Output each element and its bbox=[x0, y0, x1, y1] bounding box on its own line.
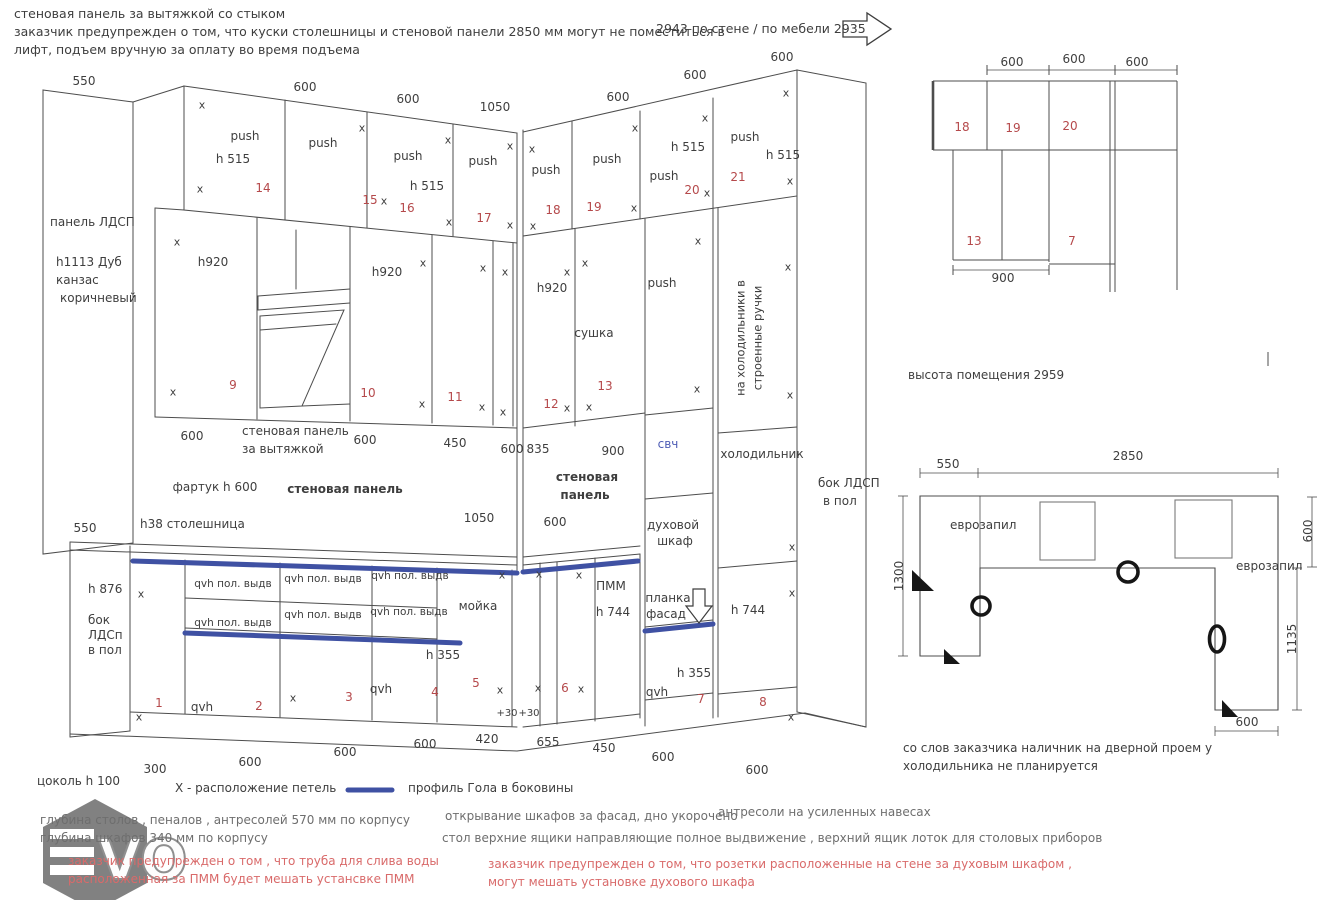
hinge-mark: x bbox=[419, 399, 426, 410]
drawing-label: бок bbox=[88, 614, 110, 626]
hinge-mark: x bbox=[564, 403, 571, 414]
drawing-label: ЛДСп bbox=[88, 629, 123, 641]
drawing-label: в пол bbox=[88, 644, 122, 656]
drawing-label: qvh bbox=[646, 686, 668, 698]
hinge-mark: x bbox=[787, 176, 794, 187]
drawing-label: h920 bbox=[372, 266, 403, 278]
cabinet-number: 13 bbox=[966, 235, 981, 247]
drawing-label: планка bbox=[645, 592, 690, 604]
hinge-mark: x bbox=[197, 184, 204, 195]
drawing-label: заказчик предупрежден о том , что труба … bbox=[68, 855, 439, 867]
gola-legend: профиль Гола в боковины bbox=[408, 782, 573, 794]
drawing-label: h 744 bbox=[596, 606, 630, 618]
drawing-label: 550 bbox=[73, 75, 96, 87]
door-trim-note: холодильника не планируется bbox=[903, 760, 1098, 772]
drawing-label: 450 bbox=[593, 742, 616, 754]
cabinet-number: 18 bbox=[545, 204, 560, 216]
hinge-mark: x bbox=[359, 123, 366, 134]
drawing-label: qvh bbox=[191, 701, 213, 713]
drawing-label: канзас bbox=[56, 274, 99, 286]
cabinet-number: 7 bbox=[697, 693, 705, 705]
hinge-mark: x bbox=[564, 267, 571, 278]
drawing-label: 600 bbox=[354, 434, 377, 446]
hinge-mark: x bbox=[582, 258, 589, 269]
hinge-mark: x bbox=[480, 263, 487, 274]
hinge-mark: x bbox=[631, 203, 638, 214]
drawing-label: 655 bbox=[537, 736, 560, 748]
cabinet-number: 2 bbox=[255, 700, 263, 712]
drawing-label: могут мешать установке духового шкафа bbox=[488, 876, 755, 888]
drawing-label: сушка bbox=[574, 327, 613, 339]
cabinet-number: 19 bbox=[586, 201, 601, 213]
fridge-handles-note: строенные ручки bbox=[752, 286, 764, 391]
drawing-label: qvh пол. выдв bbox=[284, 610, 361, 621]
room-height-note: высота помещения 2959 bbox=[908, 369, 1064, 381]
drawing-label: h920 bbox=[537, 282, 568, 294]
hinge-mark: x bbox=[704, 188, 711, 199]
drawing-label: 600 bbox=[181, 430, 204, 442]
hinge-mark: x bbox=[789, 588, 796, 599]
drawing-label: qvh bbox=[370, 683, 392, 695]
hinge-mark: x bbox=[785, 262, 792, 273]
cabinet-number: 15 bbox=[362, 194, 377, 206]
drawing-label: push bbox=[468, 155, 497, 167]
drawing-label: h 515 bbox=[410, 180, 444, 192]
drawing-label: 550 bbox=[74, 522, 97, 534]
note-lift-1: заказчик предупрежден о том, что куски с… bbox=[14, 26, 725, 39]
drawing-label: h 876 bbox=[88, 583, 122, 595]
hinge-mark: x bbox=[500, 407, 507, 418]
hinge-mark: x bbox=[632, 123, 639, 134]
drawing-label: 600 bbox=[652, 751, 675, 763]
door-trim-note: со слов заказчика наличник на дверной пр… bbox=[903, 742, 1212, 754]
drawing-label: антресоли на усиленных навесах bbox=[718, 806, 931, 818]
hinge-mark: x bbox=[420, 258, 427, 269]
drawing-label: push bbox=[531, 164, 560, 176]
drawing-label: 600 bbox=[1302, 520, 1314, 543]
hinge-mark: x bbox=[783, 88, 790, 99]
drawing-label: +30 bbox=[496, 709, 517, 719]
drawing-label: 1300 bbox=[893, 561, 905, 592]
drawing-label: панель ЛДСП bbox=[50, 216, 135, 228]
hinge-mark: x bbox=[290, 693, 297, 704]
drawing-label: глубина столов , пеналов , антресолей 57… bbox=[40, 814, 410, 826]
drawing-label: 600 bbox=[1063, 53, 1086, 65]
cabinet-number: 9 bbox=[229, 379, 237, 391]
hinge-mark: x bbox=[138, 589, 145, 600]
drawing-label: qvh пол. выдв bbox=[194, 618, 271, 629]
drawing-label: 835 bbox=[527, 443, 550, 455]
hinge-mark: x bbox=[446, 217, 453, 228]
hinge-mark: x bbox=[199, 100, 206, 111]
drawing-label: h 515 bbox=[671, 141, 705, 153]
drawing-label: шкаф bbox=[657, 535, 693, 547]
cabinet-number: 3 bbox=[345, 691, 353, 703]
hinge-mark: x bbox=[787, 390, 794, 401]
drawing-label: 2850 bbox=[1113, 450, 1144, 462]
hinge-mark: x bbox=[586, 402, 593, 413]
drawing-label: еврозапил bbox=[950, 519, 1016, 531]
cabinet-number: 8 bbox=[759, 696, 767, 708]
fridge-handles-note: на холодильники в bbox=[735, 280, 747, 396]
drawing-label: коричневый bbox=[60, 292, 137, 304]
drawing-label: push bbox=[308, 137, 337, 149]
drawing-label: заказчик предупрежден о том, что розетки… bbox=[488, 858, 1072, 870]
drawing-label: еврозапил bbox=[1236, 560, 1302, 572]
drawing-label: push bbox=[647, 277, 676, 289]
cabinet-number: 6 bbox=[561, 682, 569, 694]
drawing-label: стеновая bbox=[556, 471, 618, 483]
drawing-label: 600 bbox=[1126, 56, 1149, 68]
drawing-label: стол верхние ящики направляющие полное в… bbox=[442, 832, 1102, 844]
hinge-mark: x bbox=[578, 684, 585, 695]
cabinet-number: 18 bbox=[954, 121, 969, 133]
drawing-label: qvh пол. выдв bbox=[370, 607, 447, 618]
hinge-legend: X - расположение петель bbox=[175, 782, 336, 794]
cabinet-number: 12 bbox=[543, 398, 558, 410]
drawing-label: 900 bbox=[602, 445, 625, 457]
drawing-label: 600 bbox=[684, 69, 707, 81]
drawing-label: панель bbox=[560, 489, 609, 501]
hinge-mark: x bbox=[170, 387, 177, 398]
cabinet-number: 11 bbox=[447, 391, 462, 403]
wall-length-note: 2943 по стене / по мебели 2935 bbox=[656, 23, 866, 36]
drawing-label: h1113 Дуб bbox=[56, 256, 122, 268]
note-wall-panel: стеновая панель за вытяжкой со стыком bbox=[14, 8, 285, 21]
drawing-label: фасад bbox=[646, 608, 686, 620]
drawing-label: духовой bbox=[647, 519, 699, 531]
drawing-label: +30 bbox=[518, 709, 539, 719]
drawing-label: глубина шкафов 340 мм по корпусу bbox=[40, 832, 268, 844]
hinge-mark: x bbox=[497, 685, 504, 696]
drawing-label: qvh пол. выдв bbox=[284, 574, 361, 585]
drawing-label: стеновая панель bbox=[242, 425, 349, 437]
drawing-label: h920 bbox=[198, 256, 229, 268]
hinge-mark: x bbox=[530, 221, 537, 232]
hinge-mark: x bbox=[535, 683, 542, 694]
drawing-label: 600 bbox=[771, 51, 794, 63]
drawing-label: qvh пол. выдв bbox=[194, 579, 271, 590]
drawing-label: цоколь h 100 bbox=[37, 775, 120, 787]
hinge-mark: x bbox=[479, 402, 486, 413]
drawing-label: 450 bbox=[444, 437, 467, 449]
drawing-label: ПММ bbox=[596, 580, 626, 592]
drawing-label: 300 bbox=[144, 763, 167, 775]
drawing-label: 600 bbox=[239, 756, 262, 768]
hinge-mark: x bbox=[789, 542, 796, 553]
drawing-label: push bbox=[730, 131, 759, 143]
drawing-label: 550 bbox=[937, 458, 960, 470]
hinge-mark: x bbox=[788, 712, 795, 723]
hinge-mark: x bbox=[174, 237, 181, 248]
cabinet-number: 20 bbox=[1062, 120, 1077, 132]
cabinet-number: 13 bbox=[597, 380, 612, 392]
drawing-label: h 355 bbox=[677, 667, 711, 679]
hinge-mark: x bbox=[702, 113, 709, 124]
microwave-label: свч bbox=[658, 438, 679, 450]
sink-label: мойка bbox=[459, 600, 498, 612]
cabinet-number: 20 bbox=[684, 184, 699, 196]
drawing-label: 1135 bbox=[1286, 624, 1298, 655]
note-lift-2: лифт, подъем вручную за оплату во время … bbox=[14, 44, 360, 57]
drawing-label: за вытяжкой bbox=[242, 443, 324, 455]
cabinet-number: 7 bbox=[1068, 235, 1076, 247]
cabinet-number: 10 bbox=[360, 387, 375, 399]
drawing-label: 600 bbox=[544, 516, 567, 528]
hinge-mark: x bbox=[529, 144, 536, 155]
drawing-label: push bbox=[649, 170, 678, 182]
drawing-label: h 515 bbox=[766, 149, 800, 161]
drawing-label: фартук h 600 bbox=[173, 481, 258, 493]
drawing-label: 600 bbox=[334, 746, 357, 758]
hinge-mark: x bbox=[694, 384, 701, 395]
drawing-label: в пол bbox=[823, 495, 857, 507]
drawing-label: 600 bbox=[1001, 56, 1024, 68]
kitchen-drawing-page: V O стеновая панель за вытяжкой со стыко… bbox=[0, 0, 1341, 900]
drawing-label: h38 столешница bbox=[140, 518, 245, 530]
hinge-mark: x bbox=[536, 569, 543, 580]
drawing-label: 600 bbox=[397, 93, 420, 105]
drawing-label: push bbox=[230, 130, 259, 142]
hinge-mark: x bbox=[507, 220, 514, 231]
drawing-label: 600 bbox=[607, 91, 630, 103]
drawing-label: h 744 bbox=[731, 604, 765, 616]
cabinet-number: 5 bbox=[472, 677, 480, 689]
drawing-label: push bbox=[592, 153, 621, 165]
hinge-mark: x bbox=[507, 141, 514, 152]
drawing-label: 600 bbox=[294, 81, 317, 93]
drawing-label: 600 bbox=[1236, 716, 1259, 728]
drawing-label: 600 bbox=[746, 764, 769, 776]
fridge-label: холодильник bbox=[720, 448, 803, 460]
cabinet-number: 21 bbox=[730, 171, 745, 183]
drawing-label: qvh пол. выдв bbox=[371, 571, 448, 582]
hinge-mark: x bbox=[445, 135, 452, 146]
labels-layer: стеновая панель за вытяжкой со стыкомзак… bbox=[0, 0, 1341, 900]
hinge-mark: x bbox=[499, 570, 506, 581]
hinge-mark: x bbox=[381, 196, 388, 207]
hinge-mark: x bbox=[695, 236, 702, 247]
drawing-label: стеновая панель bbox=[287, 483, 403, 495]
cabinet-number: 19 bbox=[1005, 122, 1020, 134]
drawing-label: 600 bbox=[501, 443, 524, 455]
drawing-label: 1050 bbox=[464, 512, 495, 524]
hinge-mark: x bbox=[136, 712, 143, 723]
drawing-label: h 515 bbox=[216, 153, 250, 165]
drawing-label: 420 bbox=[476, 733, 499, 745]
cabinet-number: 4 bbox=[431, 686, 439, 698]
drawing-label: 900 bbox=[992, 272, 1015, 284]
drawing-label: h 355 bbox=[426, 649, 460, 661]
cabinet-number: 14 bbox=[255, 182, 270, 194]
hinge-mark: x bbox=[502, 267, 509, 278]
cabinet-number: 17 bbox=[476, 212, 491, 224]
drawing-label: push bbox=[393, 150, 422, 162]
cabinet-number: 16 bbox=[399, 202, 414, 214]
drawing-label: бок ЛДСП bbox=[818, 477, 880, 489]
cabinet-number: 1 bbox=[155, 697, 163, 709]
drawing-label: расположенная за ПММ будет мешать устанс… bbox=[68, 873, 415, 885]
hinge-mark: x bbox=[576, 570, 583, 581]
drawing-label: 1050 bbox=[480, 101, 511, 113]
drawing-label: открывание шкафов за фасад, дно укорочен… bbox=[445, 810, 738, 822]
drawing-label: 600 bbox=[414, 738, 437, 750]
